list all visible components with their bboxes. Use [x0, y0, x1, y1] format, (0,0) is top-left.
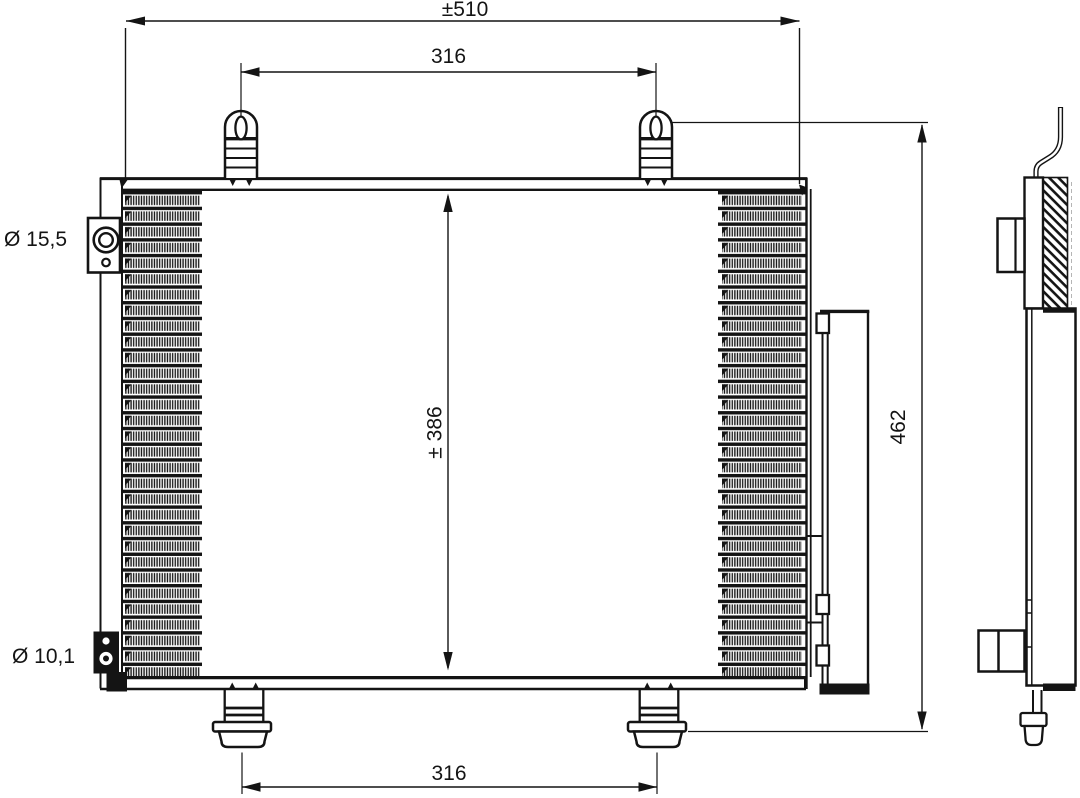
side-body: [1027, 309, 1076, 692]
fin-zone-left: [122, 191, 202, 677]
receiver-drier: [806, 311, 870, 695]
right-side-plate: [807, 178, 811, 690]
bottom-tank: [100, 672, 806, 692]
port-block-bottom: [95, 633, 119, 673]
front-view: [88, 111, 870, 747]
port-block-top: [88, 218, 120, 273]
mounting-foot-right: [628, 683, 686, 748]
dim-overall-width-label: ±510: [442, 0, 489, 21]
side-tab-lower: [979, 631, 1025, 672]
mounting-pin: [224, 111, 258, 186]
dim-core-height-label: ± 386: [424, 406, 447, 458]
side-foot: [1021, 690, 1047, 745]
top-bracket: [1036, 107, 1061, 177]
dim-bottom-foot-spacing-label: 316: [431, 762, 466, 785]
side-core-hatched: [1043, 178, 1068, 309]
condenser-drawing: ±510 316 ± 386 462 Ø 15,5 Ø 10,1 316: [0, 0, 1080, 798]
dim-top-pin-spacing: [241, 63, 656, 117]
technical-drawing-page: ±510 316 ± 386 462 Ø 15,5 Ø 10,1 316: [0, 0, 1080, 798]
fin-zone-right: [718, 191, 806, 677]
port-bottom-diameter-label: Ø 10,1: [12, 645, 75, 668]
mounting-foot: [213, 683, 271, 748]
port-top-diameter-label: Ø 15,5: [4, 228, 67, 251]
side-view: [979, 107, 1076, 745]
dim-overall-height-label: 462: [887, 409, 910, 444]
side-tab-upper: [998, 219, 1025, 273]
side-tank-strip: [1025, 178, 1044, 309]
top-tank: [100, 178, 807, 191]
mounting-pin-right: [639, 111, 673, 186]
dim-top-pin-spacing-label: 316: [431, 45, 466, 68]
